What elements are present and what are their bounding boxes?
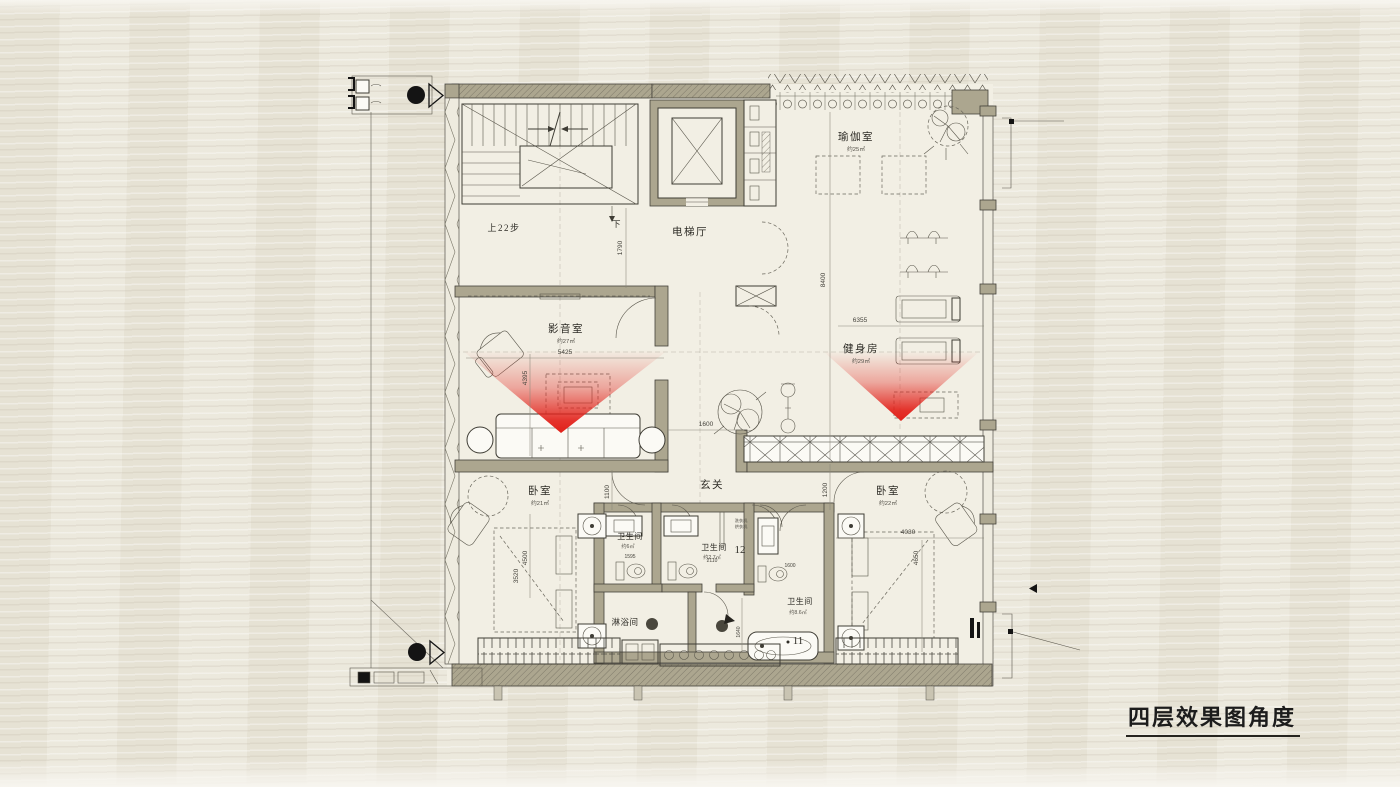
dim: 1595 bbox=[624, 554, 635, 560]
slide-background: 1790 8400 6355 5425 4395 1600 1100 1200 … bbox=[0, 0, 1400, 787]
dim: 5425 bbox=[558, 349, 573, 356]
label-bath-mid-area: 约2.7㎡ bbox=[703, 553, 721, 561]
label-stairs-down: 下 bbox=[612, 219, 622, 229]
plan-title: 四层效果图角度 bbox=[1126, 700, 1300, 737]
dim: 1600 bbox=[699, 421, 714, 428]
dim: 1790 bbox=[617, 240, 624, 255]
label-bath-left-area: 约6㎡ bbox=[621, 542, 635, 550]
label-washer: 洗衣机 bbox=[735, 517, 748, 524]
label-bedroom-right: 卧室 bbox=[876, 484, 900, 497]
side-table bbox=[639, 427, 665, 453]
dim: 6355 bbox=[853, 317, 868, 324]
label-bedroom-left-area: 约21㎡ bbox=[531, 499, 549, 507]
dim: 1100 bbox=[604, 485, 611, 499]
label-bath-left: 卫生间 bbox=[617, 531, 643, 541]
label-gym: 健身房 bbox=[843, 342, 879, 355]
camera-dot-top bbox=[407, 86, 425, 104]
label-bedroom-left: 卧室 bbox=[528, 484, 552, 497]
camera-triangle-bottom bbox=[430, 641, 444, 664]
dim: 1200 bbox=[822, 482, 829, 497]
label-stairs-up: 上22步 bbox=[487, 223, 520, 233]
label-foyer: 玄关 bbox=[700, 478, 724, 491]
right-leaders bbox=[1002, 118, 1080, 678]
dim: 1640 bbox=[736, 626, 742, 637]
exterior-columns bbox=[494, 686, 934, 700]
bathtub bbox=[748, 632, 818, 660]
sink bbox=[664, 516, 698, 536]
label-bath-right: 卫生间 bbox=[787, 596, 813, 606]
view-number-12: 12 bbox=[735, 544, 746, 556]
dim: 4030 bbox=[901, 529, 916, 536]
label-gym-area: 约29㎡ bbox=[852, 357, 870, 365]
sink bbox=[758, 518, 778, 554]
label-media: 影音室 bbox=[548, 322, 584, 335]
right-wall bbox=[983, 106, 993, 686]
label-bath-right-area: 约8.6㎡ bbox=[789, 608, 807, 616]
label-bath-mid: 卫生间 bbox=[701, 542, 727, 552]
floor-drain bbox=[646, 618, 658, 630]
label-shower: 淋浴间 bbox=[611, 617, 638, 627]
label-bedroom-right-area: 约22㎡ bbox=[879, 499, 897, 507]
label-media-area: 约27㎡ bbox=[557, 337, 575, 345]
camera-triangle-top bbox=[429, 84, 443, 107]
camera-dot-bottom bbox=[408, 643, 426, 661]
left-arrow-marker bbox=[1029, 584, 1037, 593]
label-yoga: 瑜伽室 bbox=[838, 130, 874, 143]
roof-hatch-band bbox=[768, 74, 988, 90]
dim: 4500 bbox=[522, 550, 529, 565]
floor-plan-drawing: 1790 8400 6355 5425 4395 1600 1100 1200 … bbox=[0, 0, 1400, 787]
dim: 1600 bbox=[784, 563, 795, 569]
label-dryer: 烘衣机 bbox=[735, 523, 748, 530]
dim: 4395 bbox=[522, 370, 529, 385]
label-elevator-hall: 电梯厅 bbox=[672, 225, 708, 238]
vent-band bbox=[776, 92, 952, 110]
view-number-11: 11 bbox=[793, 635, 804, 647]
dim: 3520 bbox=[513, 568, 520, 583]
dim: 8400 bbox=[820, 272, 827, 287]
side-table bbox=[467, 427, 493, 453]
dim: 4650 bbox=[913, 550, 920, 565]
label-yoga-area: 约25㎡ bbox=[847, 145, 865, 153]
